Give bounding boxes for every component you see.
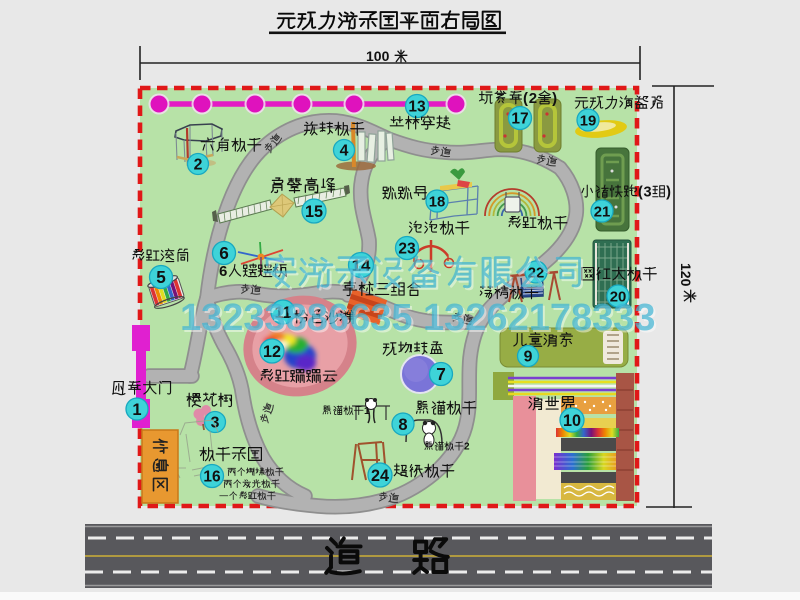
svg-text:1: 1 — [364, 405, 370, 417]
svg-text:): ) — [552, 90, 557, 107]
svg-text:16: 16 — [203, 469, 221, 486]
svg-text:21: 21 — [594, 204, 611, 220]
svg-text:7: 7 — [436, 364, 446, 384]
svg-text:100: 100 — [366, 48, 390, 64]
svg-text:15: 15 — [305, 203, 323, 221]
svg-text:18: 18 — [429, 194, 446, 210]
svg-text:2: 2 — [529, 90, 537, 107]
svg-text:(: ( — [523, 90, 528, 107]
svg-text:10: 10 — [563, 412, 581, 430]
svg-text:2: 2 — [194, 157, 203, 174]
svg-text:13: 13 — [408, 99, 426, 116]
svg-text:17: 17 — [511, 111, 528, 128]
svg-text:12: 12 — [263, 343, 281, 361]
svg-text:3: 3 — [211, 415, 220, 432]
svg-text:(: ( — [638, 185, 643, 201]
svg-text:2: 2 — [464, 442, 470, 453]
svg-text:6: 6 — [219, 263, 227, 280]
svg-text:13233886635 13262178333: 13233886635 13262178333 — [180, 297, 656, 339]
svg-text:1: 1 — [132, 401, 141, 419]
svg-text:): ) — [666, 185, 671, 201]
svg-text:4: 4 — [340, 143, 349, 160]
svg-text:24: 24 — [371, 467, 389, 485]
svg-text:120: 120 — [678, 263, 694, 287]
svg-text:19: 19 — [580, 113, 597, 129]
svg-text:6: 6 — [219, 243, 229, 263]
svg-text:8: 8 — [398, 416, 407, 434]
svg-text:23: 23 — [398, 241, 416, 258]
svg-text:3: 3 — [644, 185, 652, 201]
svg-text:5: 5 — [156, 267, 166, 287]
svg-text:9: 9 — [524, 349, 533, 366]
